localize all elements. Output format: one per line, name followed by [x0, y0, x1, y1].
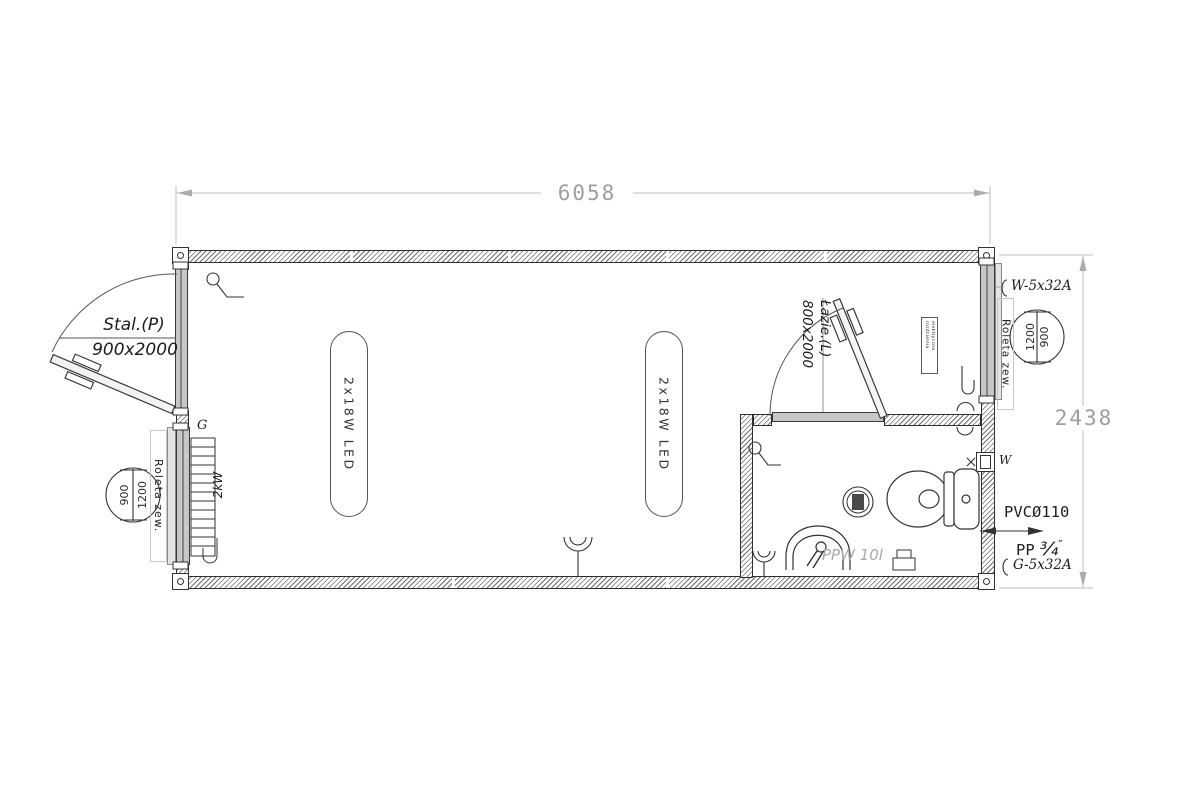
- led-fixture-1: 2x18W LED: [330, 331, 368, 517]
- left-window-dim-inner: 1200: [136, 475, 148, 515]
- entry-door-size: 900x2000: [80, 340, 190, 360]
- left-window-shutter-text: Roleta zew.: [152, 459, 165, 532]
- floor-plan-canvas: rozdzielnia elektryczna: [0, 0, 1200, 800]
- drawing-linework: [0, 0, 1200, 800]
- water-pipe-unit: ″: [1058, 538, 1062, 552]
- left-window-dim-outer: 900: [118, 475, 130, 515]
- water-mark: W: [999, 453, 1011, 467]
- sewage-pipe-label: PVCØ110: [1004, 503, 1069, 521]
- radiator-circuit-mark: G: [197, 418, 207, 433]
- water-pipe-fraction: ¾: [1040, 538, 1058, 560]
- right-window-dim-inner: 1200: [1024, 317, 1036, 357]
- bathroom-door-size: 800x2000: [799, 300, 815, 418]
- height-dimension: 2438: [1048, 406, 1120, 430]
- right-window-dim-outer: 900: [1038, 317, 1050, 357]
- right-window-shutter-label: Roleta zew.: [997, 298, 1014, 410]
- led-fixture-2: 2x18W LED: [645, 331, 683, 517]
- bathroom-door-label: Łazie.(L): [817, 300, 833, 418]
- entry-door-label: Stal.(P): [84, 315, 184, 335]
- water-heater-label: PPW 10l: [822, 546, 883, 564]
- right-window-shutter-text: Roleta zew.: [1000, 319, 1012, 389]
- led-fixture-2-label: 2x18W LED: [657, 377, 672, 472]
- power-inlet-label: W-5x32A: [1011, 278, 1072, 294]
- radiator-power-label: 2kW: [211, 463, 225, 507]
- water-pipe-material: PP: [1016, 541, 1035, 559]
- width-dimension: 6058: [545, 181, 629, 205]
- left-window-shutter-label: Roleta zew.: [150, 430, 167, 562]
- water-pipe-label: PP ¾″: [1016, 538, 1063, 560]
- led-fixture-1-label: 2x18W LED: [342, 377, 357, 472]
